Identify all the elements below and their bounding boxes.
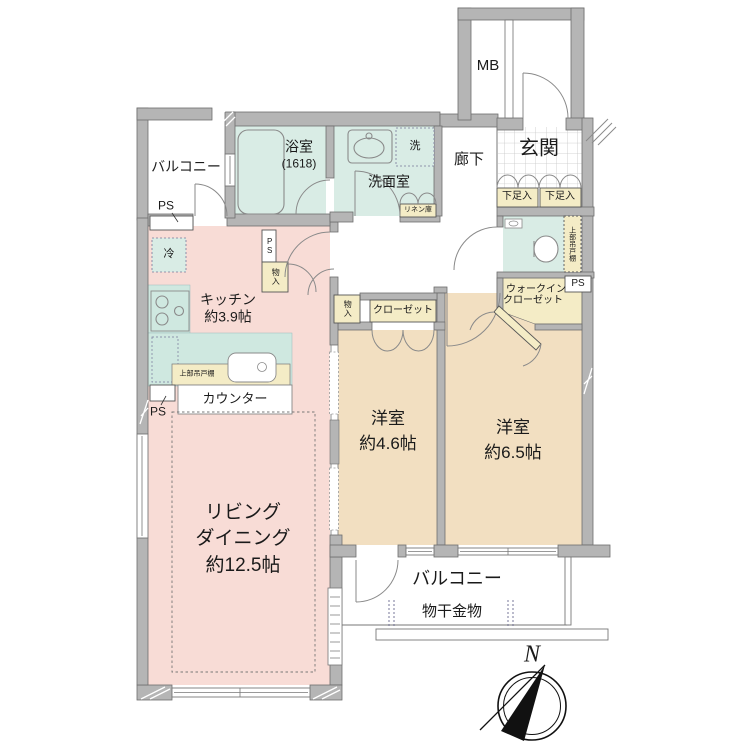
laundry-hardware-label: 物干金物 [422, 604, 482, 620]
balcony-bottom-label: バルコニー [412, 570, 502, 589]
balcony-top-label: バルコニー [151, 160, 221, 175]
floor-plan: MB 玄関 廊下 下足入 下足入 バルコニー PS 浴室 (1618) 洗面室 … [0, 0, 750, 750]
living-label-line1: リビング [205, 503, 281, 523]
shoe-cabinet-right-label: 下足入 [545, 192, 575, 203]
bath-size-label: (1618) [282, 158, 317, 171]
wic-label-line2: クローゼット [503, 296, 563, 307]
bedroom1-label: 洋室 [371, 410, 405, 428]
ps-kitchen-label: PS [265, 237, 273, 255]
bathtub [238, 130, 284, 214]
mb-label: MB [477, 58, 500, 74]
ps-top-label: PS [158, 200, 174, 213]
linen-label: リネン庫 [404, 206, 432, 213]
ps-right-label: PS [571, 279, 584, 290]
kitchen-balcony-door [195, 184, 227, 216]
bedroom1-storage-label: 物入 [343, 300, 351, 318]
kitchen-label: キッチン [200, 293, 256, 308]
washer-label: 洗 [410, 141, 421, 153]
mb-divider [505, 20, 513, 118]
balcony-rail [565, 557, 571, 625]
closet-label: クローゼット [373, 306, 433, 317]
entrance-label: 玄関 [519, 139, 559, 160]
toilet-door [454, 227, 497, 270]
hallway-label: 廊下 [454, 152, 484, 168]
living-size-label: 約12.5帖 [206, 556, 281, 576]
living-side-window [137, 434, 148, 538]
toilet-upper-cabinet-label: 上部吊戸棚 [568, 227, 575, 262]
kitchen-upper-cabinet-label: 上部吊戸棚 [180, 370, 215, 377]
balcony-step [376, 629, 608, 640]
ps-box-balcony [150, 216, 193, 230]
kitchen-storage-label: 物入 [271, 268, 279, 286]
balcony-door [356, 560, 398, 602]
ps-left-label: PS [150, 406, 166, 419]
fridge-label: 冷 [164, 249, 175, 261]
shoe-cabinet-left-label: 下足入 [502, 192, 532, 203]
bedroom2-label: 洋室 [496, 419, 530, 437]
wash-basin [348, 130, 392, 163]
compass-icon [480, 665, 566, 741]
bedroom2-size-label: 約6.5帖 [484, 444, 542, 462]
ps-box-living [150, 385, 175, 401]
counter-label: カウンター [202, 392, 267, 406]
sliding-partition [330, 345, 340, 535]
entrance-door [523, 73, 568, 118]
north-label: N [524, 642, 540, 667]
evacuation-ladder [328, 588, 342, 665]
bedroom1-size-label: 約4.6帖 [359, 435, 417, 453]
kitchen-sink [228, 353, 276, 382]
kitchen-size-label: 約3.9帖 [204, 310, 251, 325]
wic-label-line1: ウォークイン [506, 285, 566, 296]
floor-plan-drawing [0, 0, 750, 750]
living-label-line2: ダイニング [195, 529, 290, 549]
bath-label: 浴室 [285, 140, 313, 155]
washroom-label: 洗面室 [368, 175, 410, 190]
